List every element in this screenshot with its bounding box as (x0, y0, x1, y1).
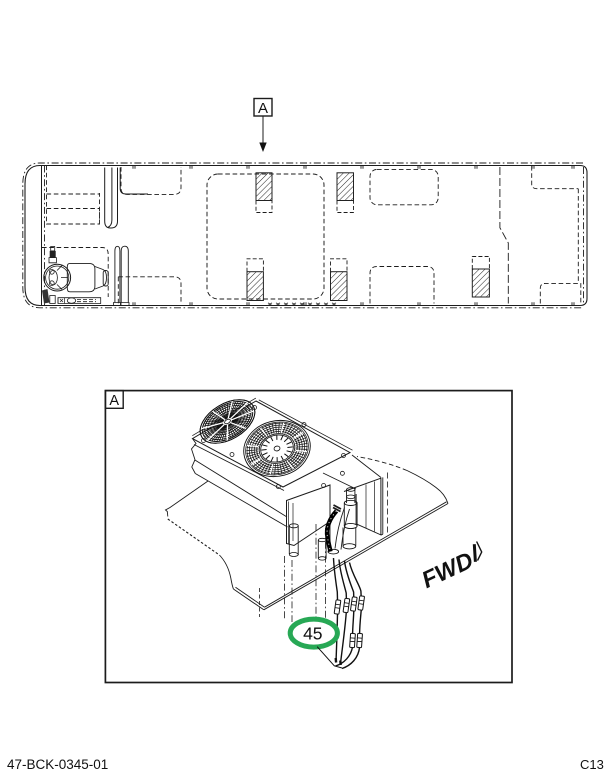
svg-text:A: A (109, 393, 119, 409)
svg-text:47-BCK-0345-01: 47-BCK-0345-01 (7, 757, 108, 772)
svg-text:C13: C13 (580, 757, 604, 772)
svg-text:45: 45 (303, 623, 322, 643)
svg-text:A: A (258, 100, 268, 117)
